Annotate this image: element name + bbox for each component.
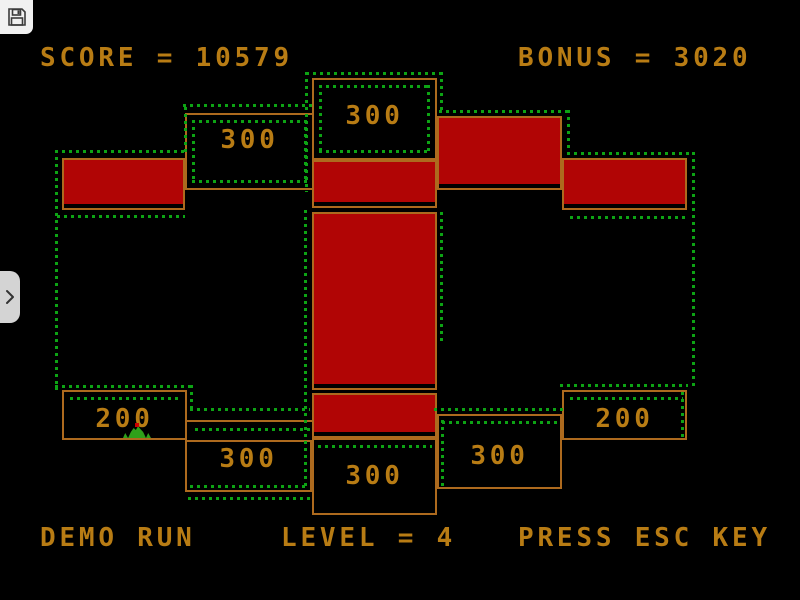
filled-block [312, 393, 437, 438]
filled-block [312, 212, 437, 390]
demo-run-label: DEMO RUN [40, 525, 196, 551]
trail-dots-v [440, 72, 443, 112]
score-box-top-center: 300 [312, 78, 437, 160]
trail-dots-h [190, 408, 310, 411]
trail-dots-v [441, 420, 444, 487]
trail-dots-v [184, 107, 187, 152]
score-box-value: 300 [187, 442, 310, 471]
trail-dots-h [183, 104, 312, 107]
filled-block [62, 158, 185, 210]
trail-dots-h [318, 445, 432, 448]
trail-dots-v [567, 110, 570, 152]
trail-dots-v [305, 72, 308, 192]
bonus-readout: BONUS = 3020 [518, 45, 751, 71]
trail-dots-h [190, 485, 308, 488]
level-readout: LEVEL = 4 [281, 525, 456, 551]
trail-dots-h [570, 216, 689, 219]
score-readout: SCORE = 10579 [40, 45, 293, 71]
trail-dots-v [681, 392, 684, 438]
trail-dots-h [70, 397, 182, 400]
trail-dots-h [188, 497, 310, 500]
floppy-disk-icon [7, 7, 27, 27]
playfield[interactable]: 300300200300300300200 [0, 0, 800, 600]
trail-dots-h [570, 397, 683, 400]
trail-dots-h [434, 408, 564, 411]
save-button[interactable] [0, 0, 33, 34]
score-box-bottom-center: 300 [312, 438, 437, 515]
filled-block [562, 158, 687, 210]
claimed-border-dots [319, 85, 430, 153]
player-marker-dot [135, 423, 139, 427]
trail-dots-v [55, 150, 58, 390]
trail-dots-v [440, 212, 443, 345]
filled-block [437, 116, 562, 190]
trail-dots-h [306, 72, 441, 75]
drawer-toggle[interactable] [0, 271, 20, 323]
trail-dots-h [439, 110, 567, 113]
wall-segment [185, 420, 312, 422]
chevron-right-icon [4, 289, 16, 305]
esc-key-hint: PRESS ESC KEY [518, 525, 771, 551]
trail-dots-h [55, 385, 190, 388]
trail-dots-v [692, 152, 695, 390]
claimed-border-dots [192, 120, 307, 183]
trail-dots-h [442, 421, 558, 424]
trail-dots-v [190, 385, 193, 410]
score-box-bottom-right-300: 300 [437, 414, 562, 489]
trail-dots-h [567, 152, 694, 155]
trail-dots-h [195, 428, 310, 431]
trail-dots-v [304, 210, 307, 490]
trail-dots-h [55, 150, 185, 153]
trail-dots-h [560, 384, 688, 387]
trail-dots-h [57, 215, 185, 218]
score-box-top-left: 300 [185, 113, 314, 190]
filled-block [312, 160, 437, 208]
game-screen: 300300200300300300200 SCORE = 10579 BONU… [0, 0, 800, 600]
